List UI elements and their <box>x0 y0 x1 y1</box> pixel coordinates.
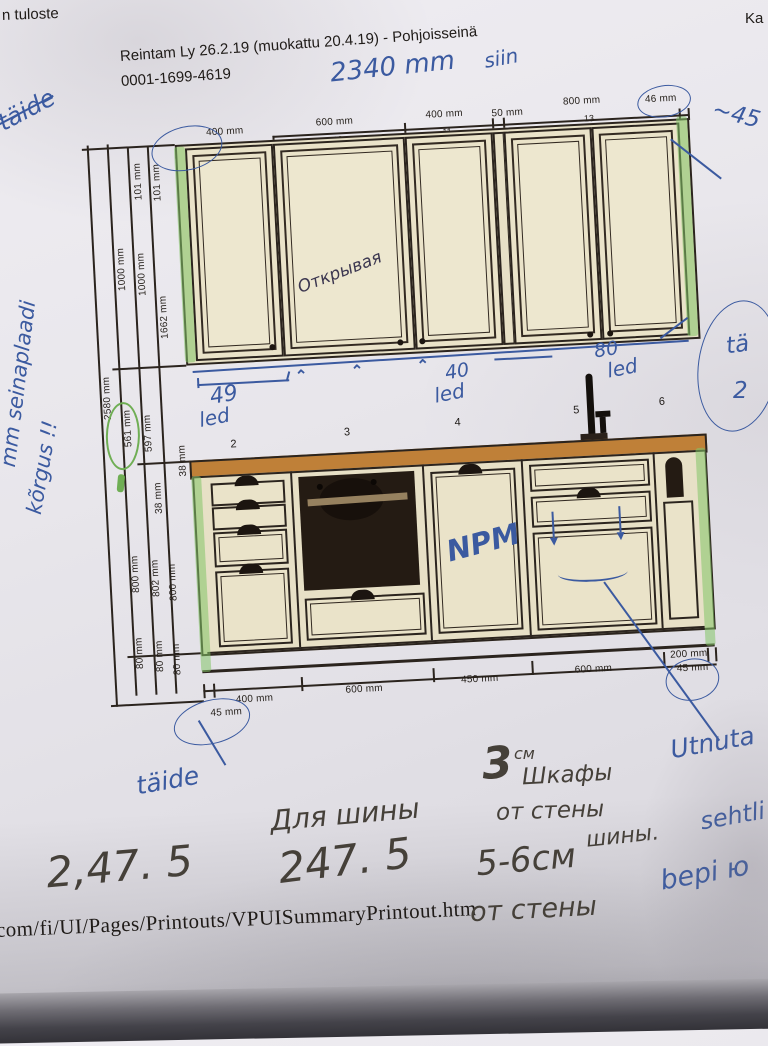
faucet-spout <box>600 417 607 433</box>
dim-top-600: 600 mm <box>315 116 353 129</box>
dim-bottom-600b: 600 mm <box>574 663 612 676</box>
cab2-door <box>215 568 293 648</box>
dim-101b: 101 mm <box>151 164 164 202</box>
upper-door-1 <box>185 144 284 361</box>
dim-597: 597 mm <box>142 414 155 452</box>
led-note-40-unit: led <box>432 378 467 407</box>
top-right-partial-text: Ka <box>745 10 763 27</box>
pen-caret: ⌃ <box>416 356 430 375</box>
pen-bracket-left <box>197 379 289 386</box>
left-tick <box>112 365 186 370</box>
upper-door-2 <box>273 137 416 357</box>
pen-arrowhead-down <box>550 537 558 545</box>
dim-bottom-450: 450 mm <box>461 673 499 686</box>
tick <box>432 668 435 682</box>
dim-1662: 1662 mm <box>158 295 171 339</box>
dim-top-800: 800 mm <box>563 95 601 108</box>
dim-800b: 800 mm <box>167 563 180 601</box>
cabinet-number-5: 5 <box>573 404 580 416</box>
faucet <box>585 373 595 435</box>
cabinet-number-4: 4 <box>454 416 461 428</box>
green-circle-561 <box>105 402 140 471</box>
upper-door-3 <box>405 132 504 349</box>
dim-38a: 38 mm <box>152 482 165 514</box>
pen-bracket-end <box>286 371 291 381</box>
item-13: 13 <box>584 113 595 124</box>
upper-door-5 <box>591 123 690 340</box>
dim-80b: 80 mm <box>154 640 167 672</box>
dim-1000b: 1000 mm <box>135 253 148 297</box>
pen-caret: ⌃ <box>295 366 309 385</box>
tick <box>301 677 304 691</box>
note-cm: см <box>514 744 535 763</box>
dim-top-400b: 400 mm <box>425 108 463 121</box>
note-ot-steny-1: от стены <box>496 796 605 826</box>
cabinet-number-6: 6 <box>659 396 666 408</box>
cab3-bottom-drawer <box>305 593 427 641</box>
upper-door-4 <box>503 127 602 344</box>
cab6-front <box>663 500 699 619</box>
pen-bracket-mid <box>494 355 552 360</box>
left-tick <box>111 700 204 706</box>
tick <box>213 684 216 698</box>
dim-101a: 101 mm <box>132 163 145 201</box>
pen-bracket-end <box>197 378 200 388</box>
dim-802: 802 mm <box>149 559 162 597</box>
note-3: 3 <box>480 737 514 790</box>
tick <box>531 661 534 675</box>
led-note-49-unit: led <box>197 403 232 432</box>
dim-1000a: 1000 mm <box>115 248 128 292</box>
dim-800a: 800 mm <box>129 555 142 593</box>
top-left-partial-text: n tuloste <box>2 5 59 24</box>
dim-38b: 38 mm <box>176 445 189 477</box>
tick <box>715 647 718 661</box>
led-note-80-unit: led <box>605 353 640 382</box>
pen-circle-45mm-bottom-right <box>662 654 723 706</box>
cabinet-number-3: 3 <box>344 426 351 438</box>
dim-80c: 80 mm <box>171 643 184 675</box>
tick <box>203 684 206 698</box>
cabinet-number-2: 2 <box>230 438 237 450</box>
dim-80a: 80 mm <box>133 637 146 669</box>
note-shkafy: Шкафы <box>521 760 613 791</box>
pen-arrowhead-down <box>617 532 625 540</box>
dim-bottom-600a: 600 mm <box>345 683 383 696</box>
note-ot-steny-2: от стены <box>469 891 597 929</box>
pen-caret: ⌃ <box>350 361 364 380</box>
dim-top-50: 50 mm <box>491 107 523 120</box>
cab6-handle <box>665 457 684 498</box>
